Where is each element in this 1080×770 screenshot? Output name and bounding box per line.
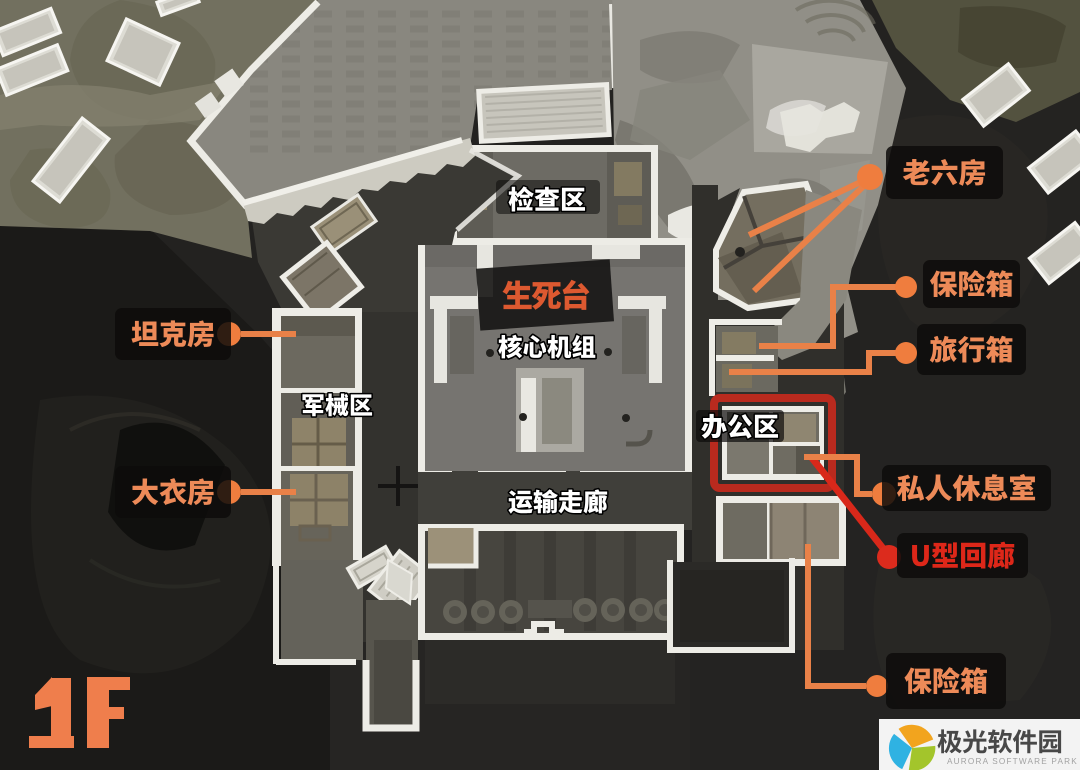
svg-text:AURORA SOFTWARE PARK: AURORA SOFTWARE PARK [947,757,1078,766]
